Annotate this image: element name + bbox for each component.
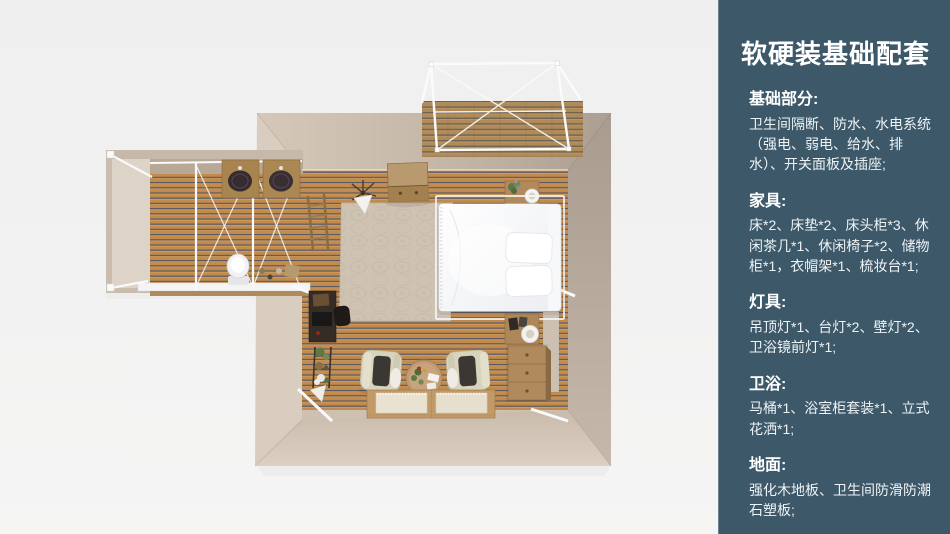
frame-post [107, 284, 114, 291]
pillow [506, 265, 553, 296]
spec-body-bathroom: 马桶*1、浴室柜套装*1、立式花洒*1; [749, 398, 932, 439]
wing-sill [138, 283, 310, 291]
toilet [227, 254, 249, 285]
spec-body-furniture: 床*2、床垫*2、床头柜*3、休闲茶几*1、休闲椅子*2、储物柜*1，衣帽架*1… [749, 215, 932, 276]
spec-body-basics: 卫生间隔断、防水、水电系统（强电、弱电、给水、排水）、开关面板及插座; [749, 114, 932, 175]
spec-section-bathroom: 卫浴: 马桶*1、浴室柜套装*1、立式花洒*1; [749, 375, 932, 439]
floor-mat [436, 393, 487, 413]
spec-section-basics: 基础部分: 卫生间隔断、防水、水电系统（强电、弱电、给水、排水）、开关面板及插座… [749, 90, 932, 175]
pillow [505, 232, 552, 264]
floor-plan-render [0, 0, 718, 534]
spec-section-lighting: 灯具: 吊顶灯*1、台灯*2、壁灯*2、卫浴镜前灯*1; [749, 293, 932, 357]
storage-cabinet [384, 162, 432, 208]
photo-frame [518, 317, 527, 328]
panel-title: 软硬装基础配套 [741, 40, 932, 70]
magazine [427, 382, 437, 389]
slide: 软硬装基础配套 基础部分: 卫生间隔断、防水、水电系统（强电、弱电、给水、排水）… [0, 0, 950, 534]
seat-cushion [458, 355, 477, 386]
double-bed [437, 204, 564, 315]
frame-post [107, 151, 114, 158]
spec-body-flooring: 强化木地板、卫生间防滑防潮石塑板; [749, 480, 932, 521]
photo-frame [508, 317, 519, 330]
spec-panel: 软硬装基础配套 基础部分: 卫生间隔断、防水、水电系统（强电、弱电、给水、排水）… [718, 0, 950, 534]
spec-section-flooring: 地面: 强化木地板、卫生间防滑防潮石塑板; [749, 456, 932, 520]
closet-floor [112, 158, 150, 288]
dresser [506, 344, 551, 402]
floor-mat [376, 393, 427, 413]
desk-chair [333, 305, 351, 327]
spec-heading-lighting: 灯具: [749, 293, 932, 314]
nightstand-bottom [505, 314, 539, 344]
spec-heading-bathroom: 卫浴: [749, 375, 932, 396]
spec-heading-furniture: 家具: [749, 192, 932, 213]
faucet [238, 166, 242, 170]
spec-heading-basics: 基础部分: [749, 90, 932, 111]
spec-section-furniture: 家具: 床*2、床垫*2、床头柜*3、休闲茶几*1、休闲椅子*2、储物柜*1，衣… [749, 192, 932, 277]
outdoor-deck [422, 61, 583, 157]
desk [309, 291, 336, 342]
faucet [279, 166, 283, 170]
spec-body-lighting: 吊顶灯*1、台灯*2、壁灯*2、卫浴镜前灯*1; [749, 317, 932, 358]
seat-cushion [372, 355, 391, 386]
bathroom-wing [106, 150, 328, 296]
floor-bed-platform [367, 390, 495, 418]
spec-heading-flooring: 地面: [749, 456, 932, 477]
wall-right [568, 113, 611, 466]
